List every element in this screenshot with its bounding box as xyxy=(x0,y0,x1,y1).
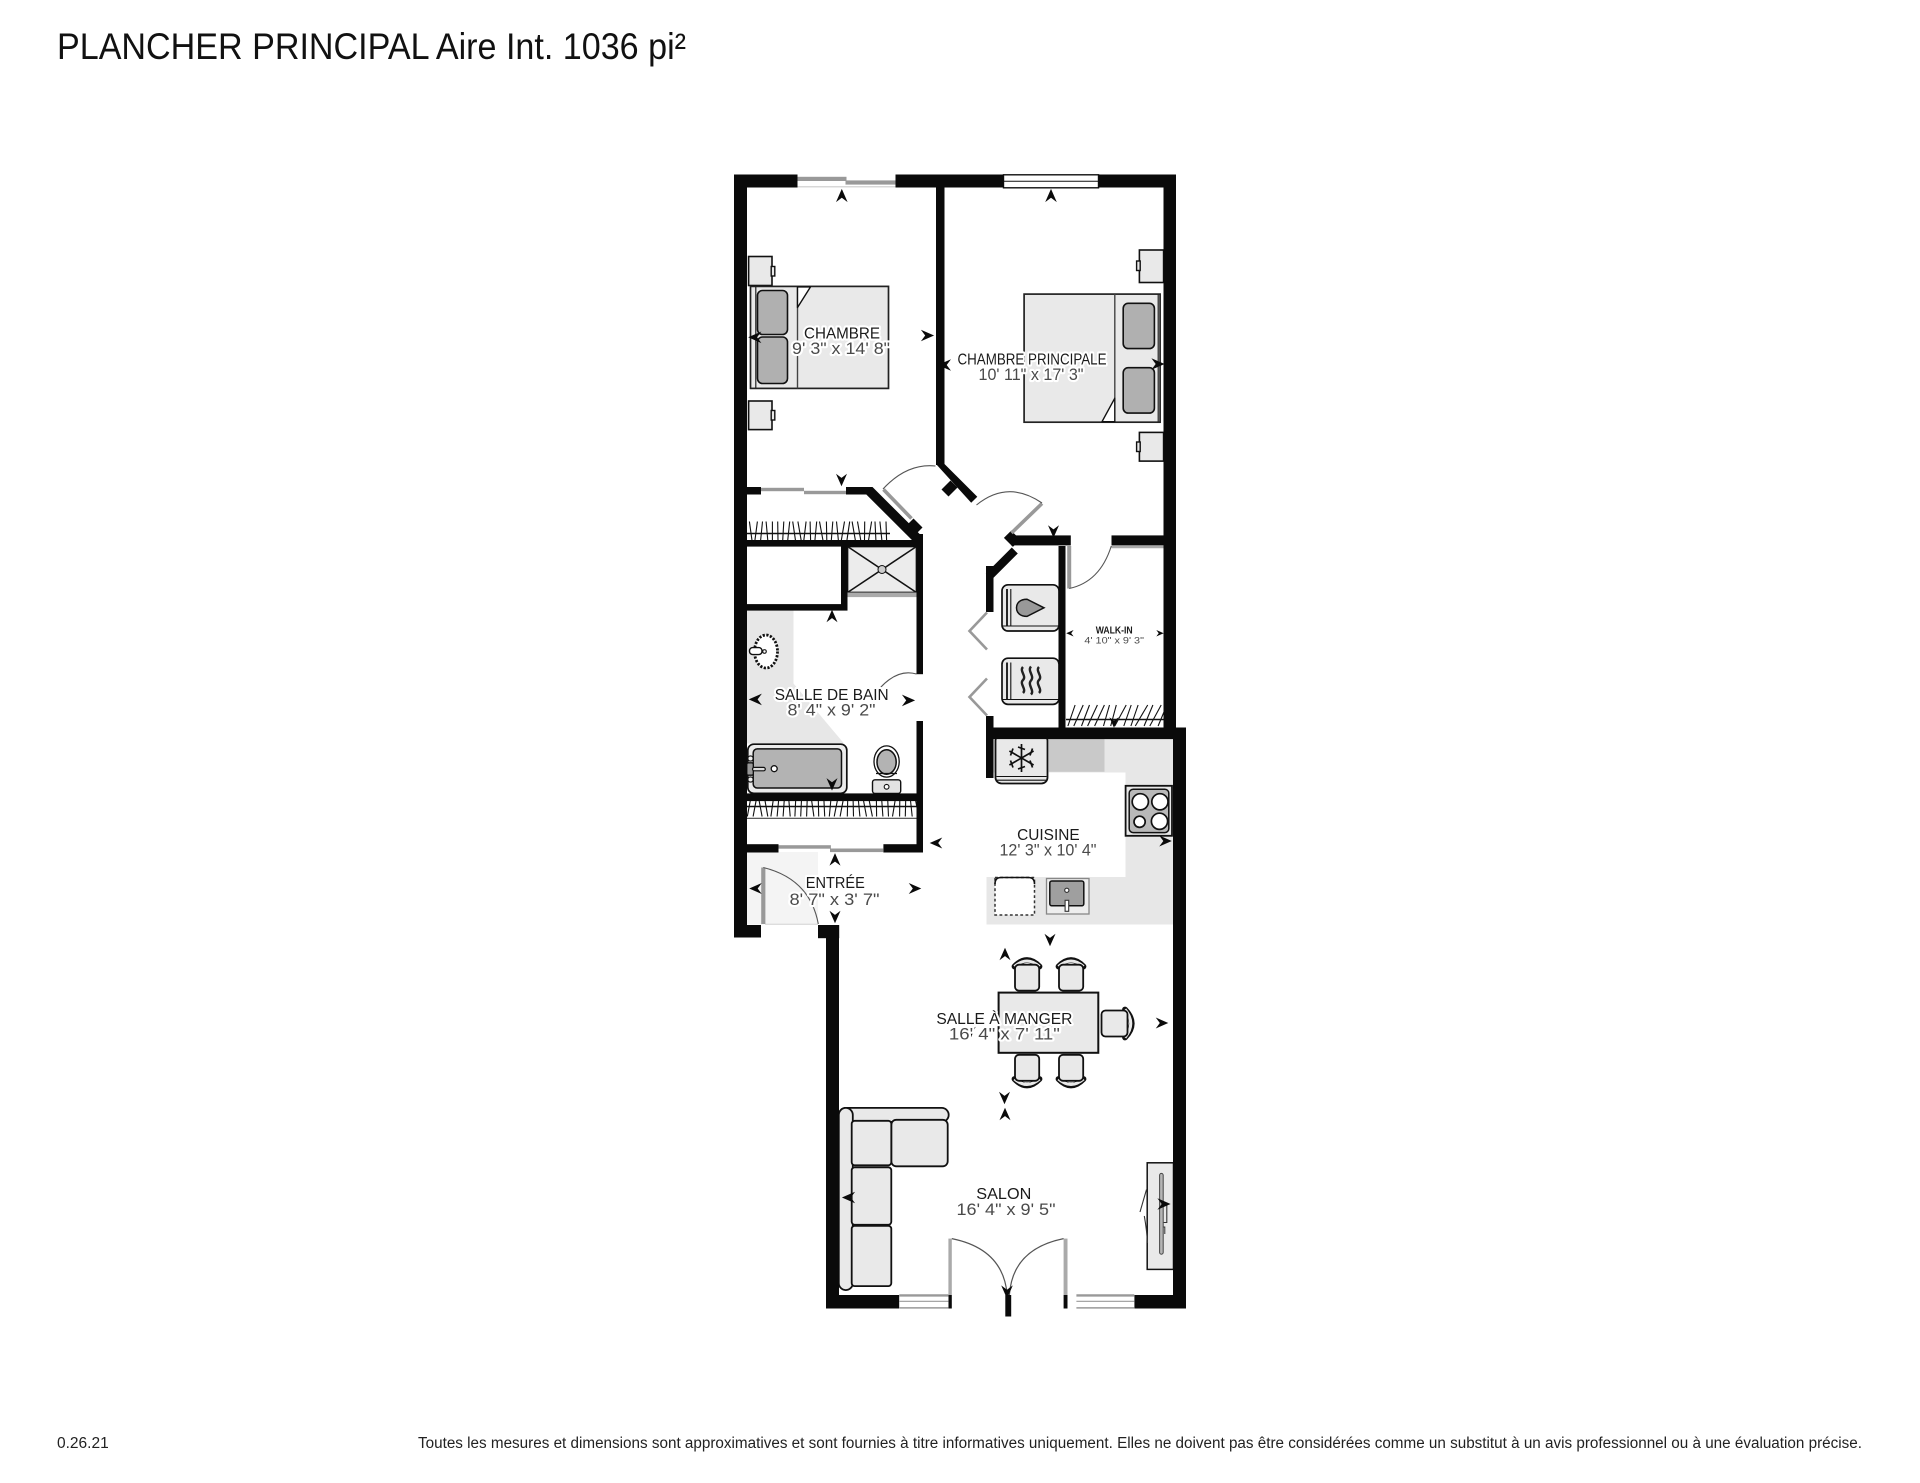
svg-text:0.26.21: 0.26.21 xyxy=(57,1435,109,1452)
svg-text:8' 7" x 3' 7": 8' 7" x 3' 7" xyxy=(790,890,880,909)
svg-text:PLANCHER PRINCIPAL Aire Int. 1: PLANCHER PRINCIPAL Aire Int. 1036 pi² xyxy=(57,26,686,67)
svg-text:9' 3" x 14' 8": 9' 3" x 14' 8" xyxy=(792,339,890,358)
svg-text:12' 3" x 10' 4": 12' 3" x 10' 4" xyxy=(1000,841,1097,860)
svg-text:Toutes les mesures et dimensio: Toutes les mesures et dimensions sont ap… xyxy=(418,1435,1862,1452)
svg-text:16' 4" x 7' 11": 16' 4" x 7' 11" xyxy=(949,1025,1060,1044)
svg-text:8' 4" x 9' 2": 8' 4" x 9' 2" xyxy=(788,701,876,720)
svg-text:10' 11" x 17' 3": 10' 11" x 17' 3" xyxy=(979,365,1084,384)
svg-text:16' 4" x 9' 5": 16' 4" x 9' 5" xyxy=(957,1200,1056,1219)
svg-text:WALK-IN: WALK-IN xyxy=(1096,624,1133,636)
svg-text:4' 10" x 9' 3": 4' 10" x 9' 3" xyxy=(1084,636,1144,647)
